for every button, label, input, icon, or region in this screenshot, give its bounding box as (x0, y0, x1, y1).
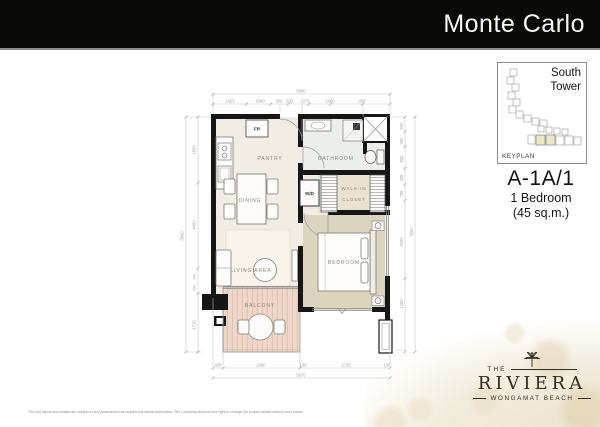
dim-top-5: 1000 (325, 99, 335, 104)
tv-console (292, 250, 298, 281)
wardrobe-left (321, 175, 337, 212)
logo-the: THE (488, 366, 507, 373)
logo-dash (578, 398, 591, 399)
disclaimer-text: The unit layout and details are subject … (28, 410, 249, 414)
logo-dash (473, 398, 486, 399)
dim-left-0: 1850 (192, 145, 197, 155)
fridge-label: FR (254, 127, 261, 132)
palm-icon (523, 352, 541, 367)
dim-left-3: 200 (193, 285, 197, 291)
room-label-bedroom: BEDROOM (328, 260, 360, 266)
service-shaft (363, 116, 388, 142)
dim-top-2: 500 (276, 99, 284, 104)
lamp (375, 298, 381, 304)
dim-right-1: 300 (399, 137, 404, 145)
dim-left-4: 1715 (192, 320, 197, 330)
balcony-chair (274, 320, 285, 334)
unit-code: A-1A/1 (480, 167, 600, 191)
keyplan-label: KEYPLAN (502, 153, 535, 160)
keyplan-box: South Tower KEYPLAN (497, 62, 587, 164)
dim-left-1: 4450 (192, 220, 197, 230)
toilet-bowl (365, 151, 376, 164)
room-label-bathroom: BATHROOM (318, 156, 354, 162)
toilet-tank (377, 150, 384, 164)
dim-left-total: 8600 (180, 231, 185, 241)
balcony-table (247, 314, 273, 340)
headboard (370, 230, 376, 294)
dim-right-4: 700 (399, 190, 404, 198)
riviera-logo: THE RIVIERA WONGAMAT BEACH (463, 352, 600, 402)
dining-chair (224, 204, 235, 219)
balcony-column-inset (217, 318, 224, 324)
dim-right-3: 400 (399, 174, 404, 182)
room-label-closet-2: CLOSET (342, 197, 366, 202)
dim-top-6: 450 (359, 99, 367, 104)
dim-top-3: 200 (286, 99, 294, 104)
page-title: Monte Carlo (443, 10, 600, 39)
room-label-living: LIVING AREA (230, 268, 271, 274)
dim-bottom-3: 2725 (341, 363, 351, 368)
brochure-page: Monte Carlo (0, 0, 600, 427)
room-label-dining: DINING (239, 198, 262, 204)
dim-left-2: 400 (193, 274, 197, 280)
dining-chair (267, 179, 278, 194)
pillow (361, 238, 368, 259)
dim-bottom-2: 100 (300, 363, 308, 368)
cooktop (218, 143, 231, 160)
dim-bottom-0: 400 (215, 363, 223, 368)
dim-bottom-total: 5675 (296, 373, 306, 378)
vanity-sink (305, 120, 331, 131)
dim-right-0: 500 (399, 122, 404, 130)
balcony-chair (238, 320, 249, 334)
dim-right-5: 2400 (399, 237, 404, 247)
dim-top-1: 1000 (255, 99, 265, 104)
lamp (375, 223, 381, 229)
dining-chair (224, 179, 235, 194)
logo-name: RIVIERA (463, 373, 600, 394)
tower-name: South Tower (531, 67, 581, 95)
room-label-closet-1: WALK-IN (341, 186, 366, 191)
unit-type: 1 Bedroom (480, 191, 600, 205)
pillow (361, 262, 368, 283)
dim-right-total: 7000 (409, 227, 414, 237)
unit-area: (45 sq.m.) (480, 206, 600, 220)
dim-bottom-1: 2450 (256, 363, 266, 368)
room-label-pantry: PANTRY (257, 156, 282, 162)
dim-top-4: 1075 (300, 99, 310, 104)
title-banner: Monte Carlo (0, 0, 600, 50)
dim-top-total: 5800 (296, 89, 306, 94)
dim-top-0: 1425 (225, 99, 235, 104)
keyplan-highlighted-units (536, 135, 555, 145)
dining-chair (267, 204, 278, 219)
room-label-balcony: BALCONY (245, 303, 275, 309)
wardrobe-right (370, 175, 385, 212)
washer-label: W/D (305, 191, 315, 196)
dim-right-2: 800 (399, 155, 404, 163)
logo-rule (511, 369, 577, 370)
logo-tagline: WONGAMAT BEACH (490, 395, 573, 402)
